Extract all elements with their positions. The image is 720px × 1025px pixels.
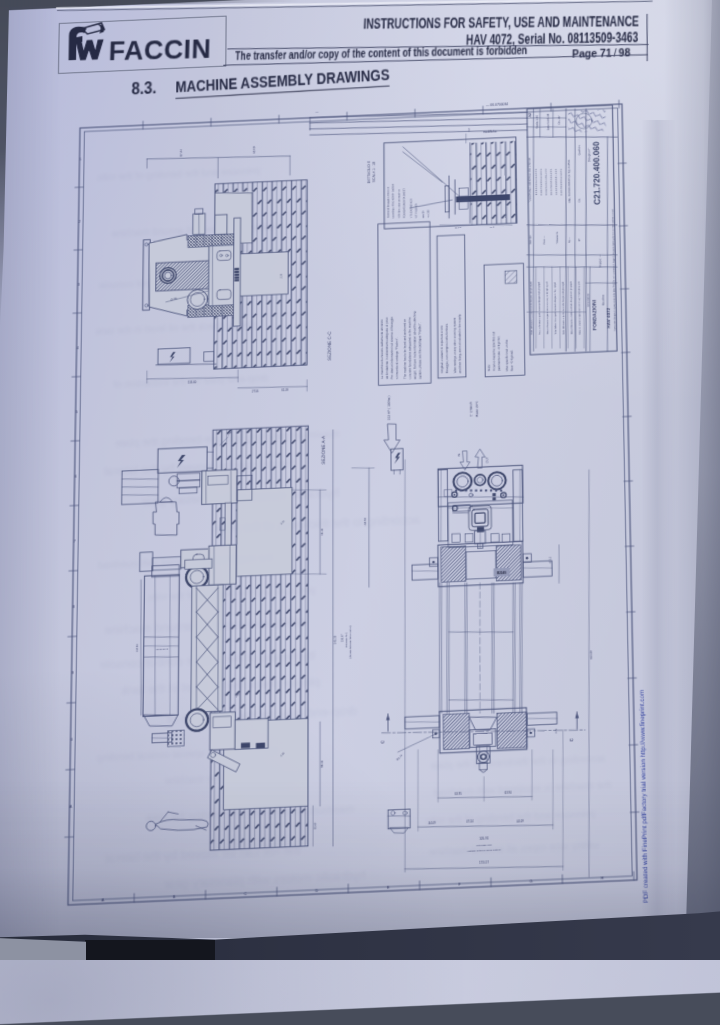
svg-text:IN: IN	[457, 453, 461, 456]
svg-text:Nota: tolleranze e quote secon: Nota: tolleranze e quote secondo disegno…	[577, 281, 581, 334]
svg-text:113.00: 113.00	[188, 380, 197, 384]
svg-text:M2049: M2049	[497, 571, 507, 576]
svg-text:7: 7	[73, 539, 75, 543]
svg-text:2.36: 2.36	[281, 273, 283, 278]
svg-text:H: H	[601, 876, 604, 880]
svg-text:63.95: 63.95	[454, 792, 462, 797]
svg-text:195.87: 195.87	[341, 633, 344, 642]
svg-text:SEZIONE A-A: SEZIONE A-A	[321, 436, 326, 465]
svg-text:SEZIONE C-C: SEZIONE C-C	[327, 331, 332, 361]
svg-text:C: C	[569, 738, 574, 741]
svg-text:26.38 20.92: 26.38 20.92	[156, 649, 169, 652]
svg-text:7.87: 7.87	[469, 127, 471, 132]
svg-text:floor ~5 Kg/cm2.: floor ~5 Kg/cm2.	[510, 349, 514, 371]
svg-text:E: E	[387, 885, 390, 889]
svg-text:D: D	[315, 889, 318, 893]
svg-text:su fondazione in calcestruzzo: su fondazione in calcestruzzo adeguata a…	[385, 316, 389, 379]
svg-text:10 1/2: 10 1/2	[455, 227, 462, 229]
svg-text:B: B	[173, 895, 176, 899]
svg-text:Data 04.03.08: Data 04.03.08	[546, 113, 550, 130]
svg-text:Sistemi di fissaggio a terra c: Sistemi di fissaggio a terra con	[387, 186, 390, 218]
svg-text:2: 2	[78, 220, 80, 224]
svg-text:87.44: 87.44	[179, 149, 183, 157]
svg-text:Originali o sistemi di copertu: Originali o sistemi di copertura e loro	[439, 325, 444, 373]
svg-text:153 HP ( 110Kw ): 153 HP ( 110Kw )	[387, 396, 391, 421]
svg-text:Ø1.18: Ø1.18	[396, 753, 404, 761]
svg-text:8: 8	[72, 605, 74, 609]
svg-text:(interasse fori): (interasse fori)	[345, 632, 348, 647]
svg-text:pavimento vale ~5 Kg/cm2.: pavimento vale ~5 Kg/cm2.	[496, 335, 501, 371]
svg-text:9: 9	[71, 671, 73, 675]
svg-text:— 06.0700034: — 06.0700034	[486, 103, 508, 108]
svg-text:0.1 0.2 0.3 0.5 0.8 1.2 2 3: 0.1 0.2 0.3 0.5 0.8 1.2 2 3	[561, 168, 563, 195]
svg-text:(Interasse fori): (Interasse fori)	[476, 843, 492, 847]
svg-text:C21.720.400.060: C21.720.400.060	[591, 141, 603, 205]
svg-text:4: 4	[76, 346, 79, 350]
svg-text:1" 2.5mc/h: 1" 2.5mc/h	[469, 401, 473, 416]
svg-text:0.1 0.2 0.3 0.5 0.8 1.2 2 3: 0.1 0.2 0.3 0.5 0.8 1.2 2 3	[551, 168, 553, 195]
svg-text:Materiale: Materiale	[529, 234, 532, 244]
svg-text:19.7: 19.7	[490, 227, 495, 229]
svg-text:Wire-nettings or any other cov: Wire-nettings or any other covering syst…	[452, 317, 457, 373]
svg-text:system, please see the catalog: system, please see the catalogue “Fische…	[418, 322, 423, 379]
svg-text:413.39: 413.39	[589, 650, 593, 659]
svg-text:(distance between holes centre: (distance between holes centres)	[467, 848, 501, 853]
svg-text:Per ulteriori informazioni sul: Per ulteriori informazioni sul sistema d…	[390, 316, 394, 379]
svg-text:Nota: tolleranze e quote secon: Nota: tolleranze e quote secondo disegno…	[569, 281, 573, 334]
svg-text:Scala 1:40: Scala 1:40	[535, 115, 539, 129]
svg-text:La macchina dev'essere saldame: La macchina dev'essere saldamente ancora…	[380, 319, 384, 379]
svg-text:—: —	[315, 110, 318, 114]
svg-text:Note:: Note:	[487, 364, 491, 371]
svg-text:fissaggio, non compresi nella: fissaggio, non compresi nella fornitura.	[444, 323, 449, 373]
svg-text:Gruppo: —: Gruppo: —	[598, 254, 602, 268]
svg-text:min 200: min 200	[428, 209, 430, 218]
svg-text:Nota: tolleranze e quote secon: Nota: tolleranze e quote secondo disegno…	[537, 281, 541, 334]
svg-text:Dis.: Dis.	[579, 198, 581, 202]
svg-text:0.1 0.2 0.3 0.5 0.8 1.2 2 3: 0.1 0.2 0.3 0.5 0.8 1.2 2 3	[536, 168, 538, 195]
svg-text:W: W	[578, 238, 581, 241]
svg-text:Qualifiche: Qualifiche	[579, 144, 581, 155]
svg-text:145.28: 145.28	[333, 635, 337, 644]
svg-text:The machine has to be layed an: The machine has to be layed and anchored…	[403, 318, 408, 379]
svg-text:C: C	[380, 740, 385, 743]
svg-text:3: 3	[77, 283, 79, 287]
svg-text:0: 0	[70, 738, 72, 742]
svg-text:47.24: 47.24	[466, 820, 474, 825]
svg-text:47.13: 47.13	[549, 556, 552, 563]
svg-text:Descrizione: Descrizione	[587, 293, 590, 307]
svg-text:Il carico massimo specifico su: Il carico massimo specifico sul	[491, 331, 496, 371]
svg-text:Water 20°C: Water 20°C	[475, 400, 479, 417]
svg-text:A: A	[69, 805, 72, 809]
svg-text:VTR fibre bolts see machine: VTR fibre bolts see machine	[398, 188, 401, 218]
svg-text:27.56: 27.56	[252, 390, 259, 393]
svg-text:concrete foundations adeguated: concrete foundations adeguated vs the ma…	[407, 316, 412, 379]
svg-text:KML, FILE/DATABASE (44 Kg) UN: KML, FILE/DATABASE (44 Kg) UNI8541	[568, 159, 572, 203]
svg-text:98.43: 98.43	[320, 760, 324, 768]
svg-text:5: 5	[75, 410, 77, 414]
svg-text:Peso —: Peso —	[544, 235, 546, 244]
svg-text:weight. To have more informati: weight. To have more information about t…	[412, 311, 417, 379]
svg-text:(distance between holes centre: (distance between holes centres)	[349, 625, 352, 658]
svg-text:Nota: tolleranze e quote secon: Nota: tolleranze e quote secondo disegno…	[545, 281, 549, 334]
svg-text:PDF created with FinePrint pdf: PDF created with FinePrint pdfFactory tr…	[639, 690, 650, 903]
svg-text:0.1 0.2 0.3 0.5 0.8 1.2 2 3: 0.1 0.2 0.3 0.5 0.8 1.2 2 3	[546, 168, 548, 195]
svg-text:HAV 4072: HAV 4072	[606, 307, 612, 328]
svg-text:C: C	[244, 892, 247, 896]
svg-text:65.09: 65.09	[252, 146, 256, 154]
svg-text:44.09: 44.09	[516, 819, 524, 824]
svg-text:OUT: OUT	[485, 457, 489, 464]
svg-text:A2: A2	[528, 113, 532, 118]
svg-text:98.43: 98.43	[320, 528, 324, 536]
svg-text:9.13: 9.13	[556, 728, 558, 734]
svg-text:FOUNDATION DATA SHEET: FOUNDATION DATA SHEET	[403, 188, 406, 218]
svg-text:134.84: 134.84	[363, 517, 367, 526]
svg-text:Macchina: Macchina	[602, 294, 605, 306]
svg-text:A: A	[101, 898, 104, 902]
svg-text:0.1 0.2 0.3 0.5 0.8 1.2 2 3: 0.1 0.2 0.3 0.5 0.8 1.2 2 3	[556, 168, 558, 195]
svg-text:G: G	[529, 879, 532, 883]
svg-text:mm 50: mm 50	[423, 210, 425, 218]
svg-text:Max specific load on the: Max specific load on the	[504, 339, 509, 371]
svg-text:F: F	[458, 882, 461, 886]
svg-text:Nota: tolleranze e quote secon: Nota: tolleranze e quote secondo disegno…	[553, 281, 557, 334]
svg-text:195.84: 195.84	[136, 643, 139, 652]
svg-text:VTS EAS 435 M20: VTS EAS 435 M20	[410, 198, 413, 218]
svg-text:modifiche: modifiche	[483, 130, 497, 135]
svg-text:Dis. AV: Dis. AV	[557, 115, 561, 124]
svg-text:63.94: 63.94	[504, 790, 512, 795]
svg-text:Nota: tolleranze e quote secon: Nota: tolleranze e quote secondo disegno…	[561, 281, 565, 334]
svg-text:si rimanda al catalogo “Fische: si rimanda al catalogo “Fischer”.	[395, 337, 399, 379]
svg-text:DETTAGLIO E: DETTAGLIO E	[367, 160, 371, 183]
svg-text:105.91: 105.91	[479, 836, 489, 841]
svg-text:65.09: 65.09	[282, 389, 289, 392]
svg-text:44.09: 44.09	[428, 821, 436, 826]
svg-text:173.17: 173.17	[479, 861, 489, 866]
svg-text:VIT. FISCHER: VIT. FISCHER	[416, 203, 418, 218]
svg-text:Trattamento: Trattamento	[556, 231, 559, 244]
svg-text:82.68: 82.68	[314, 822, 317, 829]
svg-text:and their fixing, are not incl: and their fixing, are not included in th…	[457, 314, 462, 374]
svg-text:0.1 0.2 0.3 0.5 0.8 1.2 2 3: 0.1 0.2 0.3 0.5 0.8 1.2 2 3	[541, 168, 543, 195]
svg-text:TOLLERANZE GENERALI ISO 2768-m: TOLLERANZE GENERALI ISO 2768-mK	[528, 157, 532, 203]
svg-text:1: 1	[79, 157, 81, 161]
svg-text:FONDAZIONI: FONDAZIONI	[592, 299, 599, 330]
svg-text:6: 6	[74, 474, 76, 478]
svg-text:Kg —: Kg —	[569, 236, 571, 243]
svg-text:SCALA 1 : 10: SCALA 1 : 10	[372, 162, 376, 183]
svg-text:tasselli tipo FISCHER FH 24/50: tasselli tipo FISCHER FH 24/50 B	[392, 183, 395, 218]
